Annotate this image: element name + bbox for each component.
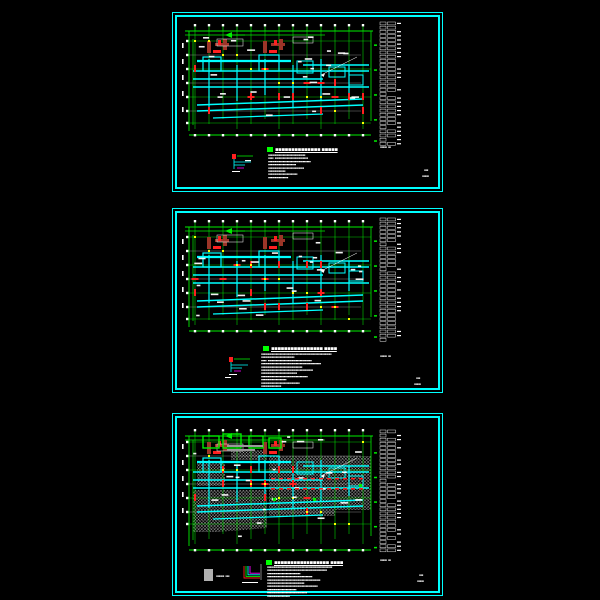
sheet-1-table-caption: ▪▪▪▪▪ ▪▪: [380, 146, 391, 149]
sheet-3-notes: ▪▪▪▪▪▪▪▪▪▪▪▪▪▪▪▪▪▪▪▪▪▪▪▪▪▪▪▪▪▪▪▪▪▪▪▪▪▪▪▪…: [267, 566, 332, 598]
drawing-sheet-1[interactable]: ▪▪▪▪▪▪▪▪▪▪▪▪▪▪ ▪▪▪▪▪ ▪▪▪▪▪▪▪▪▪▪▪▪▪▪▪▪▪▪▪…: [172, 12, 443, 192]
title-marker-icon: [266, 560, 272, 565]
sheet-2-titleblock-line1: ▪▪▪: [416, 377, 420, 380]
sheet-3-titleblock-line1: ▪▪▪: [419, 574, 423, 577]
sheet-1-titleblock-line2: ▪▪▪▪▪: [422, 175, 429, 178]
drawing-sheet-3[interactable]: ▪▪▪▪▪▪▪▪▪▪▪▪▪▪▪▪▪ ▪▪▪▪ ▪▪▪▪▪▪▪▪▪▪▪▪▪▪▪▪▪…: [172, 413, 443, 596]
sheet-3-table-caption: ▪▪▪▪▪ ▪▪: [380, 559, 391, 562]
sheet-2-table-caption: ▪▪▪▪▪ ▪▪: [380, 355, 391, 358]
sheet-1-titleblock-line1: ▪▪▪: [424, 169, 428, 172]
sheet-2-titleblock-line2: ▪▪▪▪▪: [414, 383, 421, 386]
section-arrow-icon: [225, 228, 245, 234]
cad-preview-canvas: ▪▪▪▪▪▪▪▪▪▪▪▪▪▪ ▪▪▪▪▪ ▪▪▪▪▪▪▪▪▪▪▪▪▪▪▪▪▪▪▪…: [0, 0, 600, 600]
sheet-2-notes: ▪▪▪▪▪▪▪▪▪▪▪▪▪▪▪▪▪▪▪▪▪▪▪▪▪▪▪▪▪▪▪▪▪▪▪▪▪▪▪▪…: [261, 353, 331, 389]
note-line: ▪▪▪▪▪▪▪▪▪▪▪▪▪▪▪: [268, 177, 310, 180]
note-line: ▪▪▪▪▪▪▪▪▪▪▪▪▪▪▪▪▪: [267, 595, 332, 598]
sheet-1-notes: ▪▪▪▪▪▪▪▪▪▪▪▪▪▪▪▪▪▪▪▪▪▪▪▪▪▪▪▪▪▪▪▪ ▪▪▪▪▪▪▪…: [268, 154, 310, 180]
drawing-sheet-2[interactable]: ▪▪▪▪▪▪▪▪▪▪▪▪▪▪▪▪ ▪▪▪▪ ▪▪▪▪▪▪▪▪▪▪▪▪▪▪▪▪▪▪…: [172, 208, 443, 393]
sheet-3-legend-label: ▪▪▪▪▪▪ ▪▪▪: [216, 575, 229, 578]
note-line: ▪▪▪▪▪▪▪▪▪▪▪▪▪▪▪: [261, 385, 331, 388]
sheet-3-titleblock-line2: ▪▪▪▪▪: [417, 580, 424, 583]
title-marker-icon: [267, 147, 273, 152]
title-marker-icon: [263, 346, 269, 351]
sheet-2-drawing-title: ▪▪▪▪▪▪▪▪▪▪▪▪▪▪▪▪ ▪▪▪▪: [263, 346, 337, 352]
sheet-1-drawing-title: ▪▪▪▪▪▪▪▪▪▪▪▪▪▪ ▪▪▪▪▪: [267, 147, 338, 153]
section-arrow-icon: [225, 32, 245, 38]
